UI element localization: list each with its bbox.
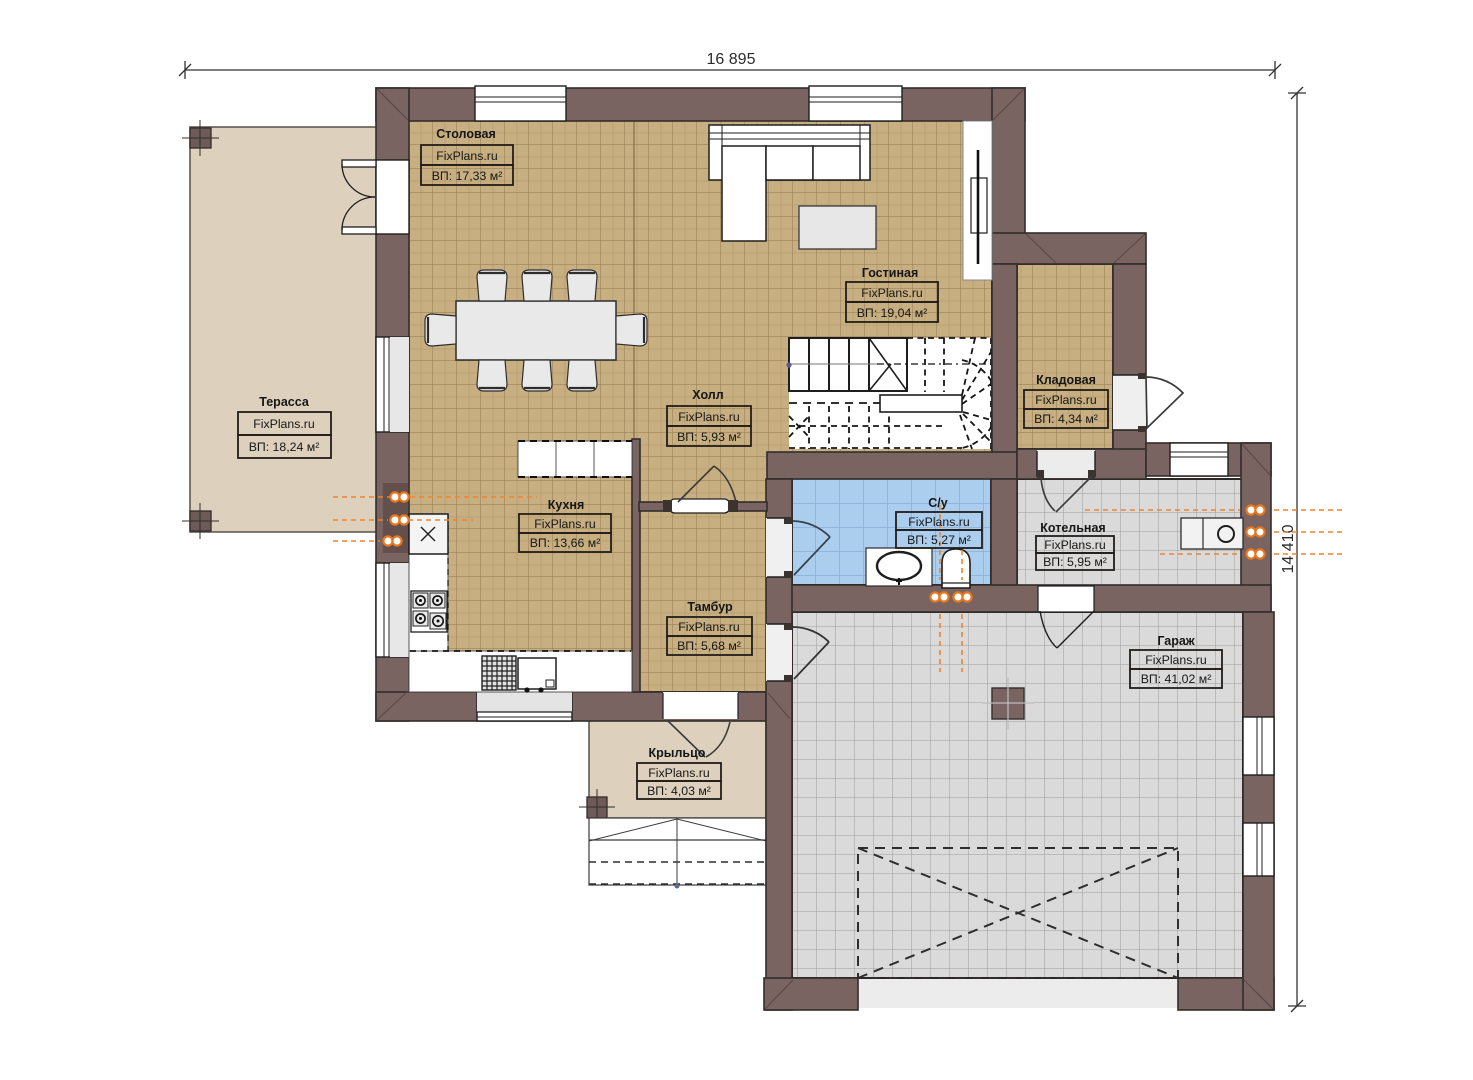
svg-text:ВП: 41,02 м²: ВП: 41,02 м² bbox=[1141, 672, 1212, 686]
svg-text:ВП: 4,03 м²: ВП: 4,03 м² bbox=[647, 784, 711, 798]
svg-text:ВП: 5,95 м²: ВП: 5,95 м² bbox=[1043, 555, 1107, 569]
svg-text:FixPlans.ru: FixPlans.ru bbox=[253, 417, 315, 431]
svg-text:FixPlans.ru: FixPlans.ru bbox=[534, 517, 596, 531]
svg-text:FixPlans.ru: FixPlans.ru bbox=[1035, 393, 1097, 407]
svg-text:16 895: 16 895 bbox=[707, 51, 756, 68]
svg-text:ВП: 17,33 м²: ВП: 17,33 м² bbox=[432, 169, 503, 183]
svg-text:Крыльцо: Крыльцо bbox=[649, 746, 706, 760]
svg-text:Столовая: Столовая bbox=[436, 127, 496, 141]
svg-text:ВП: 18,24 м²: ВП: 18,24 м² bbox=[249, 440, 320, 454]
svg-text:ВП: 4,34 м²: ВП: 4,34 м² bbox=[1034, 412, 1098, 426]
svg-text:Кладовая: Кладовая bbox=[1036, 373, 1096, 387]
svg-text:Холл: Холл bbox=[692, 388, 723, 402]
svg-text:FixPlans.ru: FixPlans.ru bbox=[436, 149, 498, 163]
svg-text:ВП: 5,93 м²: ВП: 5,93 м² bbox=[677, 430, 741, 444]
svg-text:FixPlans.ru: FixPlans.ru bbox=[678, 410, 740, 424]
svg-text:Котельная: Котельная bbox=[1040, 521, 1105, 535]
svg-text:FixPlans.ru: FixPlans.ru bbox=[1145, 653, 1207, 667]
svg-text:ВП: 5,68 м²: ВП: 5,68 м² bbox=[677, 639, 741, 653]
svg-text:Тамбур: Тамбур bbox=[687, 600, 733, 614]
svg-text:Кухня: Кухня bbox=[548, 498, 585, 512]
svg-text:ВП: 13,66 м²: ВП: 13,66 м² bbox=[530, 536, 601, 550]
svg-text:FixPlans.ru: FixPlans.ru bbox=[1044, 538, 1106, 552]
svg-text:С/у: С/у bbox=[928, 496, 948, 510]
svg-text:Гостиная: Гостиная bbox=[862, 266, 919, 280]
svg-text:ВП: 19,04 м²: ВП: 19,04 м² bbox=[857, 306, 928, 320]
svg-text:Терасса: Терасса bbox=[259, 395, 310, 409]
svg-text:FixPlans.ru: FixPlans.ru bbox=[648, 766, 710, 780]
svg-text:FixPlans.ru: FixPlans.ru bbox=[908, 515, 970, 529]
svg-text:FixPlans.ru: FixPlans.ru bbox=[678, 620, 740, 634]
svg-text:FixPlans.ru: FixPlans.ru bbox=[861, 286, 923, 300]
svg-text:ВП: 5,27 м²: ВП: 5,27 м² bbox=[907, 533, 971, 547]
svg-text:Гараж: Гараж bbox=[1157, 634, 1194, 648]
